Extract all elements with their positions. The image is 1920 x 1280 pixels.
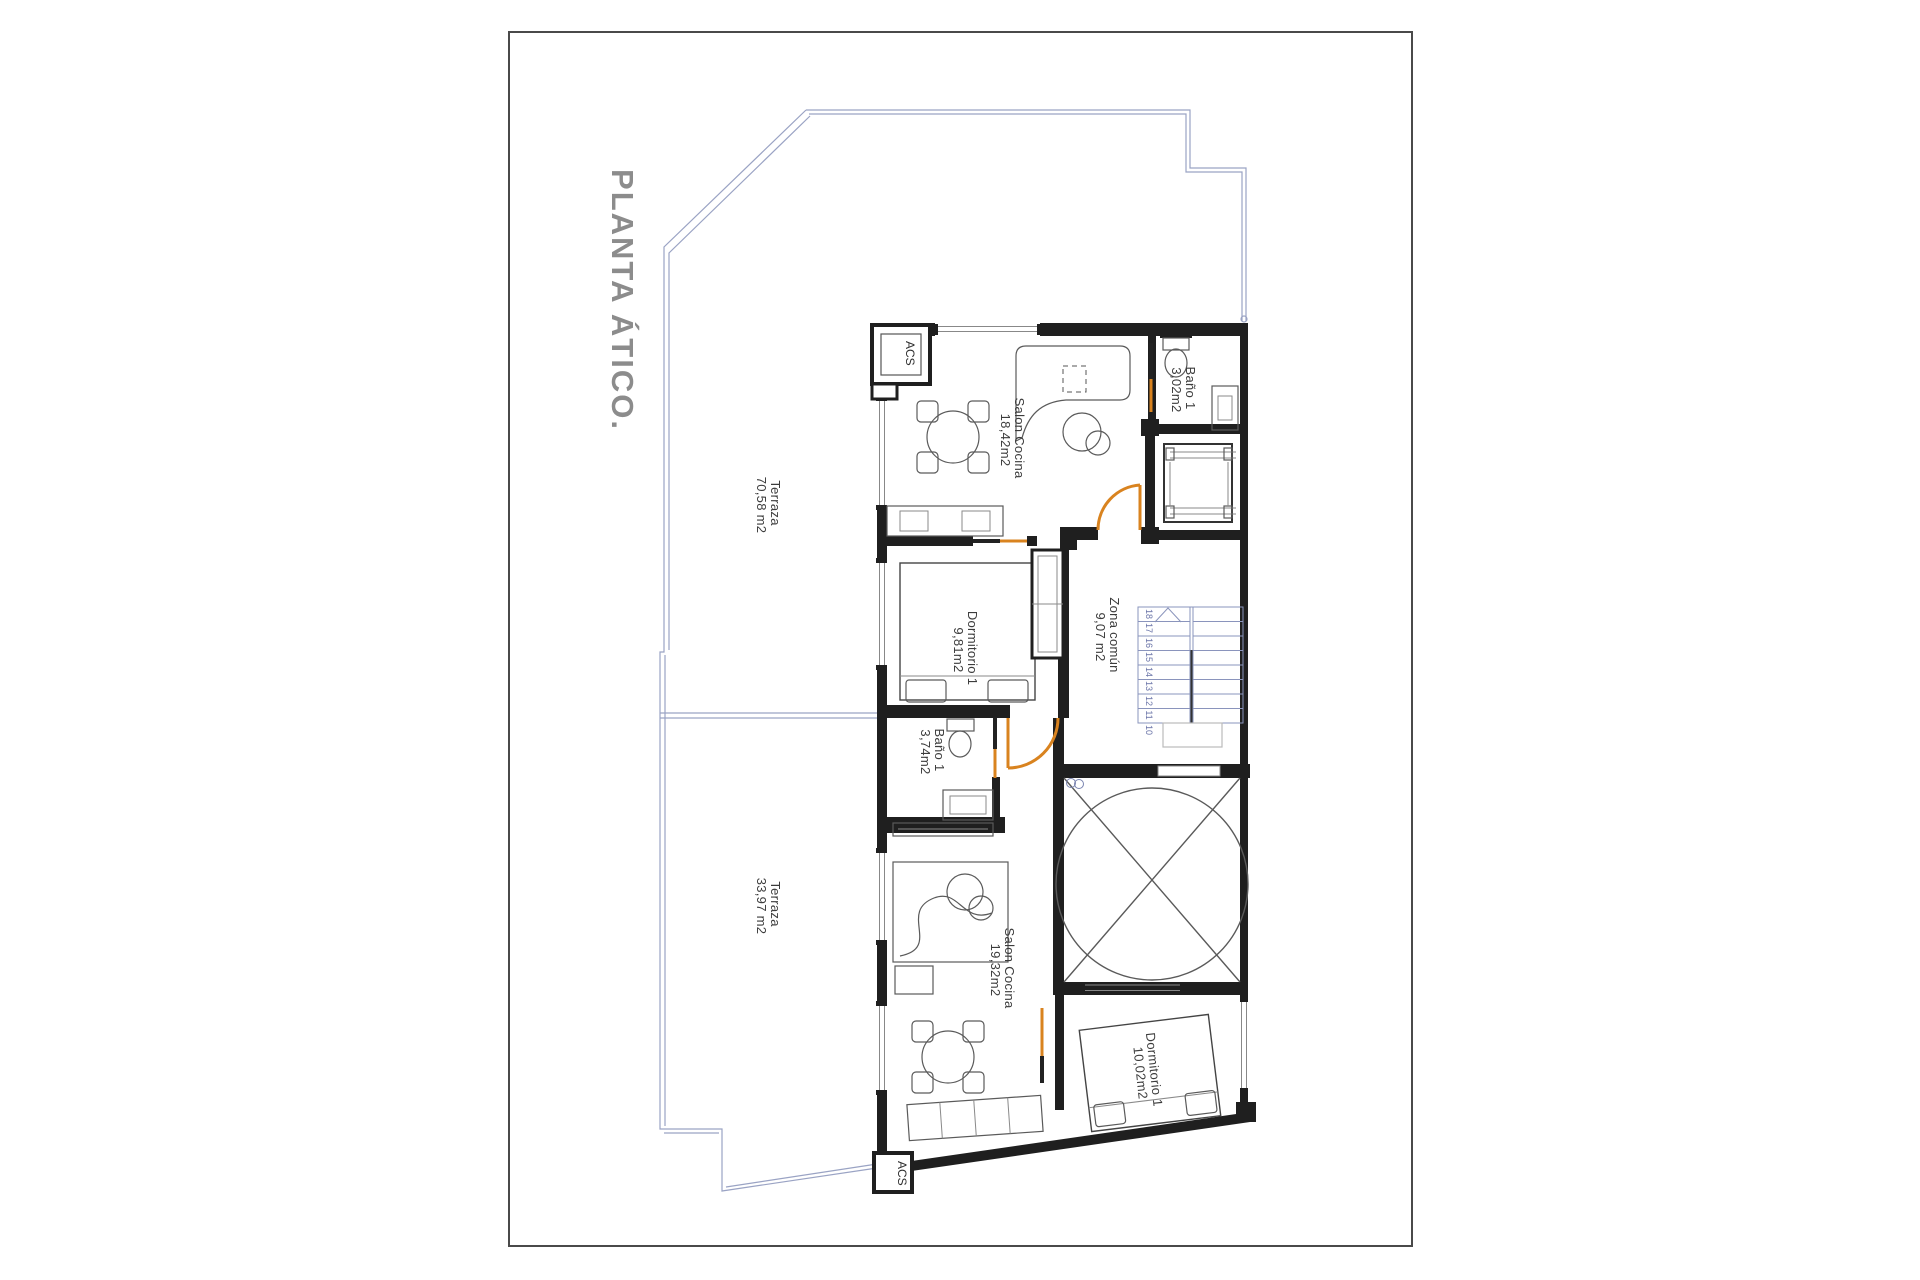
acs-label-top: ACS [903, 341, 917, 366]
acs-closet-bottom: ACS [874, 1153, 912, 1192]
label-bano-302: Baño 1 3,02m2 [1169, 367, 1198, 414]
room-name: Baño 1 [1183, 367, 1198, 410]
page-title: PLANTA ÁTICO. [605, 169, 640, 431]
room-area: 70,58 m2 [754, 477, 769, 534]
acs-label-bottom: ACS [895, 1161, 909, 1186]
room-name: Salon Cocina [1002, 928, 1017, 1009]
room-area: 9,81m2 [951, 627, 966, 672]
label-terraza-b: Terraza 33,97 m2 [754, 878, 783, 935]
step-number: 13 [1144, 681, 1154, 691]
step-number: 11 [1144, 710, 1154, 719]
closet-a [1032, 550, 1063, 658]
step-number: 12 [1144, 696, 1154, 706]
step-number: 10 [1144, 725, 1154, 735]
room-area: 3,74m2 [918, 729, 933, 774]
step-number: 17 [1144, 623, 1154, 633]
room-area: 33,97 m2 [754, 878, 769, 935]
room-area: 18,42m2 [998, 414, 1013, 467]
step-number: 16 [1144, 638, 1154, 648]
room-name: Terraza [768, 881, 783, 927]
step-number: 18 [1144, 609, 1154, 619]
step-number: 14 [1144, 667, 1154, 677]
room-name: Baño 1 [932, 729, 947, 772]
room-area: 9,07 m2 [1093, 612, 1108, 661]
step-number: 15 [1144, 652, 1154, 662]
plan-sheet: PLANTA ÁTICO. [0, 0, 1920, 1280]
label-bano-374: Baño 1 3,74m2 [918, 729, 947, 776]
room-name: Salon Cocina [1012, 398, 1027, 479]
floor-plan-drawing: PLANTA ÁTICO. [0, 0, 1920, 1280]
stair-step-numbers: 18 17 16 15 14 13 12 11 10 [1144, 609, 1154, 735]
room-name: Terraza [768, 480, 783, 526]
room-area: 3,02m2 [1169, 367, 1184, 412]
label-terraza-a: Terraza 70,58 m2 [754, 477, 783, 534]
room-name: Zona común [1107, 597, 1122, 672]
room-name: Dormitorio 1 [965, 611, 980, 685]
room-area: 19,32m2 [988, 944, 1003, 997]
